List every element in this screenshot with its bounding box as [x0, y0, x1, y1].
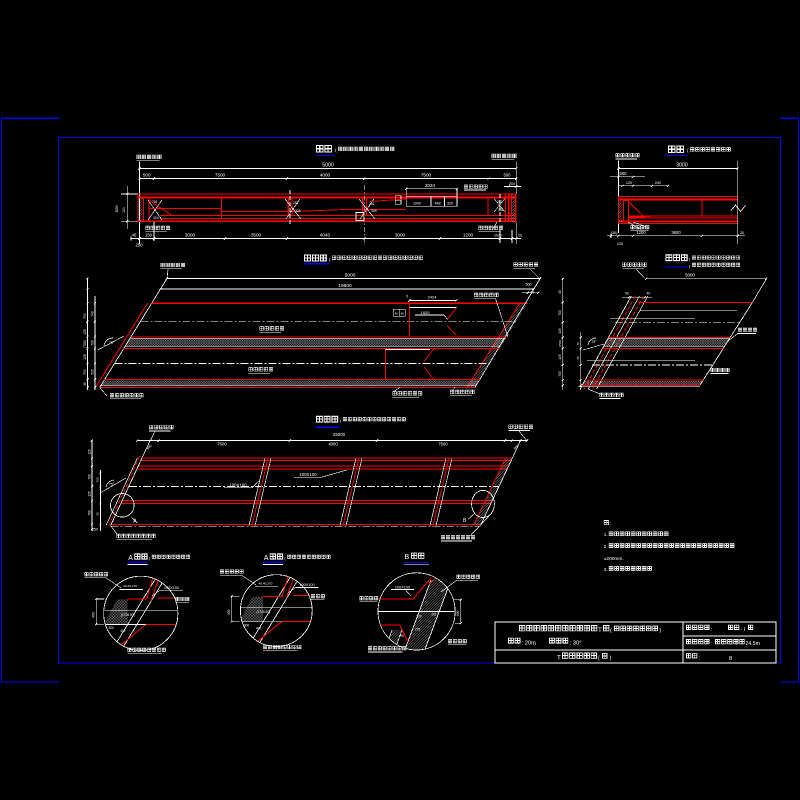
svg-text:125: 125 — [83, 354, 87, 360]
svg-text:251: 251 — [431, 612, 437, 616]
svg-text:100X100: 100X100 — [229, 483, 247, 488]
svg-text:100X100: 100X100 — [164, 586, 179, 590]
svg-text:7500: 7500 — [421, 172, 432, 177]
svg-text:7500: 7500 — [438, 441, 448, 446]
svg-text:120: 120 — [626, 181, 632, 185]
svg-text:700: 700 — [91, 340, 95, 346]
svg-text:251: 251 — [497, 200, 503, 204]
svg-text:): ) — [660, 628, 662, 634]
svg-text:7500: 7500 — [215, 172, 226, 177]
svg-text:8: 8 — [729, 656, 732, 662]
svg-text:(700): (700) — [558, 340, 562, 347]
svg-text:I: I — [744, 627, 745, 633]
svg-text:251: 251 — [293, 201, 299, 205]
svg-text:T: T — [598, 627, 602, 634]
svg-text:700: 700 — [558, 371, 562, 377]
svg-text:700: 700 — [87, 474, 91, 480]
svg-text:300: 300 — [244, 624, 250, 628]
svg-text:500: 500 — [620, 171, 628, 176]
svg-text:: 20m: : 20m — [522, 641, 537, 647]
svg-text:700: 700 — [83, 369, 87, 375]
svg-text:700: 700 — [83, 313, 87, 319]
svg-text:20: 20 — [518, 234, 522, 238]
svg-text:5000: 5000 — [345, 272, 356, 278]
svg-text:1000: 1000 — [413, 202, 421, 206]
svg-text:740: 740 — [91, 311, 95, 317]
svg-text:50: 50 — [625, 292, 629, 296]
svg-text:308: 308 — [498, 208, 504, 212]
svg-text:500: 500 — [143, 172, 151, 177]
svg-text:25000: 25000 — [333, 432, 346, 437]
svg-text:448: 448 — [435, 202, 441, 206]
svg-text:4040: 4040 — [320, 233, 331, 238]
svg-text:(30): (30) — [611, 231, 618, 235]
svg-text:400: 400 — [92, 612, 96, 618]
svg-text:70: 70 — [576, 342, 580, 346]
svg-text:A: A — [128, 555, 133, 562]
svg-text:3000: 3000 — [395, 233, 406, 238]
svg-text:(1728.50): (1728.50) — [121, 613, 135, 617]
svg-text::: : — [711, 627, 712, 633]
svg-text:40: 40 — [401, 311, 405, 315]
svg-text:3000: 3000 — [676, 163, 688, 169]
svg-text:3000: 3000 — [185, 233, 196, 238]
svg-text:125: 125 — [83, 329, 87, 335]
svg-text:40,40,270: 40,40,270 — [259, 582, 273, 586]
svg-text:125: 125 — [558, 328, 562, 334]
svg-text:1920: 1920 — [421, 310, 431, 315]
svg-text:(700): (700) — [83, 340, 87, 347]
svg-text:-: - — [741, 627, 743, 633]
svg-text:4000: 4000 — [328, 441, 338, 446]
svg-text:120: 120 — [87, 449, 91, 455]
svg-text:230: 230 — [416, 614, 422, 618]
svg-text:100X100: 100X100 — [299, 583, 314, 587]
svg-text:320: 320 — [447, 202, 453, 206]
svg-text:250: 250 — [136, 242, 144, 247]
svg-text:275: 275 — [415, 627, 421, 631]
svg-text:19800: 19800 — [338, 283, 352, 289]
svg-text:(: ( — [598, 656, 600, 662]
svg-text:(: ( — [610, 628, 612, 634]
svg-text:(1728.50): (1728.50) — [257, 610, 271, 614]
svg-text:120: 120 — [122, 207, 126, 213]
svg-text:400: 400 — [456, 611, 460, 617]
svg-text:40: 40 — [558, 290, 562, 294]
svg-text:B: B — [463, 518, 467, 524]
svg-text:125: 125 — [558, 354, 562, 360]
svg-text:40: 40 — [647, 292, 651, 296]
svg-text:242: 242 — [655, 181, 661, 185]
svg-text:A: A — [264, 555, 269, 562]
svg-text:250: 250 — [92, 527, 98, 531]
svg-text::: : — [711, 641, 712, 647]
svg-text:75°: 75° — [109, 341, 115, 345]
svg-text:120: 120 — [617, 242, 623, 246]
svg-text:500: 500 — [504, 172, 512, 177]
svg-text:40: 40 — [132, 233, 137, 238]
svg-text:T: T — [557, 655, 561, 662]
svg-text:760: 760 — [96, 477, 100, 482]
svg-text:1.: 1. — [604, 532, 608, 537]
svg-text:4000: 4000 — [320, 172, 331, 177]
svg-text:400: 400 — [227, 609, 231, 615]
svg-text:300: 300 — [108, 626, 114, 630]
svg-text::: : — [610, 521, 611, 527]
svg-text:100X100: 100X100 — [299, 472, 317, 477]
svg-text:402: 402 — [256, 627, 262, 631]
svg-text:125: 125 — [87, 491, 91, 497]
svg-text:40: 40 — [395, 311, 399, 315]
svg-text:5000: 5000 — [322, 162, 334, 168]
svg-text:251: 251 — [369, 202, 375, 206]
svg-text::: : — [699, 655, 700, 661]
svg-text:700: 700 — [87, 510, 91, 516]
svg-text:20: 20 — [740, 231, 744, 235]
svg-text:24.5m: 24.5m — [746, 641, 760, 647]
svg-text:2424: 2424 — [428, 294, 438, 299]
svg-text:±200mm.: ±200mm. — [604, 556, 624, 562]
svg-text:402: 402 — [120, 629, 126, 633]
svg-text:1050: 1050 — [115, 205, 119, 212]
svg-text:150: 150 — [145, 233, 153, 238]
svg-text:B: B — [405, 554, 410, 561]
svg-text:700: 700 — [558, 310, 562, 316]
svg-text:35: 35 — [96, 512, 100, 516]
svg-text:90: 90 — [400, 634, 404, 638]
svg-text:75°: 75° — [592, 340, 598, 344]
svg-text:251: 251 — [152, 200, 158, 204]
svg-text:): ) — [610, 656, 612, 662]
svg-text:5000: 5000 — [685, 273, 695, 278]
svg-text:2.: 2. — [604, 544, 608, 549]
svg-text:5: 5 — [406, 294, 408, 298]
svg-text:35: 35 — [576, 356, 580, 360]
svg-text:3.: 3. — [604, 567, 608, 572]
svg-text:7500: 7500 — [217, 441, 227, 446]
svg-text:500: 500 — [526, 282, 532, 286]
svg-text:3500: 3500 — [251, 233, 262, 238]
svg-text:40,40,270: 40,40,270 — [123, 584, 137, 588]
svg-text:3600: 3600 — [671, 230, 681, 235]
svg-text:1200: 1200 — [636, 230, 646, 235]
svg-text:308: 308 — [295, 209, 301, 213]
svg-text:35: 35 — [83, 382, 87, 386]
svg-text:2024: 2024 — [425, 183, 436, 188]
svg-text:200: 200 — [509, 182, 515, 186]
svg-text:: 30°: : 30° — [570, 641, 582, 647]
svg-text:324: 324 — [153, 216, 159, 220]
svg-text:1020: 1020 — [494, 234, 502, 238]
svg-text:1200: 1200 — [463, 233, 474, 238]
svg-text:525: 525 — [91, 369, 95, 375]
svg-text:309: 309 — [371, 209, 377, 213]
svg-text:100X100: 100X100 — [395, 585, 410, 589]
